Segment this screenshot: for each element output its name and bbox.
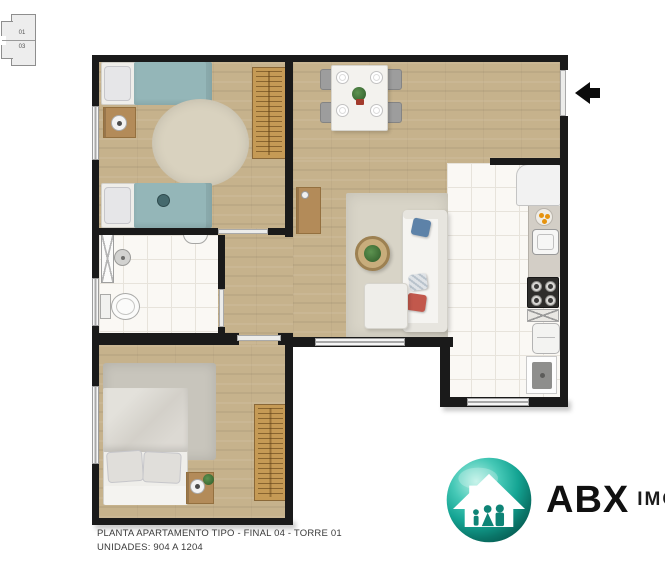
master-plant	[203, 474, 214, 485]
twin-bed-1-pillow	[104, 66, 131, 101]
double-bed-pillow-left	[106, 450, 144, 483]
shower-screen	[101, 234, 114, 283]
laundry-tank-basin	[532, 362, 552, 389]
wall-bathroom-right-upper	[218, 235, 225, 289]
plan-title-line2: UNIDADES: 904 A 1204	[97, 541, 417, 555]
double-bed-pillow-right	[142, 451, 182, 484]
entrance-arrow-head	[575, 82, 590, 104]
plan-title-block: PLANTA APARTAMENTO TIPO - FINAL 04 - TOR…	[97, 527, 417, 555]
kitchen-counter-segment	[527, 309, 559, 322]
bathroom-door	[219, 289, 224, 327]
twin-bed-2-blanket	[134, 183, 212, 228]
coffee-table-plant	[364, 245, 381, 262]
master-wardrobe	[254, 404, 287, 501]
shower-head	[114, 249, 131, 266]
plan-title-line1: PLANTA APARTAMENTO TIPO - FINAL 04 - TOR…	[97, 527, 417, 541]
wall-master-bottom	[92, 518, 293, 525]
master-wardrobe-hangers	[258, 408, 283, 497]
fruit-1	[539, 213, 544, 218]
dining-plate-1	[336, 71, 349, 84]
house-family-icon	[444, 455, 534, 545]
brand-suffix: IMO	[637, 489, 665, 511]
brand-logo-icon	[444, 455, 534, 545]
stove-burner-3	[531, 295, 542, 306]
toilet-tank	[100, 294, 111, 319]
twin-bed-2-pillow	[104, 187, 131, 224]
stove-burner-2	[545, 281, 556, 292]
coffee-table	[355, 236, 390, 271]
entrance-door	[560, 70, 566, 116]
wall-right-upper	[560, 55, 568, 70]
brand-name: ABX	[546, 481, 629, 519]
wall-bedroom2-bottom-left	[92, 228, 218, 235]
brand-logo: ABX IMO	[444, 452, 665, 547]
laundry-tank	[526, 356, 557, 394]
sofa-arm-top	[403, 210, 447, 219]
key-plan-unit-bottom-label: 03	[9, 42, 35, 52]
dining-plate-4	[370, 104, 383, 117]
wall-top	[92, 55, 568, 62]
wall-master-right	[285, 345, 293, 525]
window-kitchen	[467, 398, 529, 406]
window-bathroom	[92, 278, 99, 326]
dining-plate-2	[370, 71, 383, 84]
wall-bathroom-master	[92, 333, 239, 345]
window-bedroom2	[92, 106, 99, 160]
double-bed-duvet	[103, 388, 188, 452]
bedroom2-round-rug	[152, 99, 249, 187]
sofa-backrest	[438, 213, 447, 329]
kitchen-sink	[532, 229, 559, 255]
window-master	[92, 386, 99, 464]
key-plan-divider	[2, 40, 35, 41]
kitchen-cabinet	[532, 323, 560, 354]
hall-floor	[218, 228, 293, 347]
wall-kitchen-top	[490, 158, 568, 165]
fruit-2	[545, 214, 550, 219]
entrance-arrow-icon	[575, 82, 603, 104]
stove-burner-4	[545, 295, 556, 306]
sofa-cushion-red	[406, 293, 427, 312]
stove	[527, 277, 559, 308]
sofa-cushion-blue	[410, 217, 431, 237]
bedroom2-lamp	[111, 115, 127, 131]
ottoman	[364, 283, 408, 329]
twin-bed-2-decor	[157, 194, 170, 207]
sofa-arm-bottom	[403, 323, 447, 332]
refrigerator	[516, 164, 561, 206]
bedroom2-wardrobe	[252, 67, 286, 159]
floor-plan-canvas: 01 03	[0, 0, 665, 566]
sofa-cushion-patterned	[408, 273, 428, 291]
dining-plate-3	[336, 104, 349, 117]
bedroom2-wardrobe-hangers	[256, 71, 282, 155]
dining-plant-pot	[356, 99, 364, 105]
master-door	[237, 335, 281, 341]
stove-burner-1	[531, 281, 542, 292]
bedroom2-door	[218, 229, 268, 234]
key-plan: 01 03	[1, 14, 37, 66]
window-living	[315, 338, 405, 346]
entrance-arrow-tail	[589, 88, 600, 98]
fruit-bowl	[535, 208, 553, 226]
hall-sideboard-decor	[301, 191, 309, 199]
fruit-3	[542, 219, 547, 224]
double-bed-sheet	[104, 486, 187, 505]
wall-bedroom2-right	[285, 55, 293, 237]
toilet-bowl	[111, 293, 140, 320]
key-plan-unit-top-label: 01	[9, 28, 35, 38]
